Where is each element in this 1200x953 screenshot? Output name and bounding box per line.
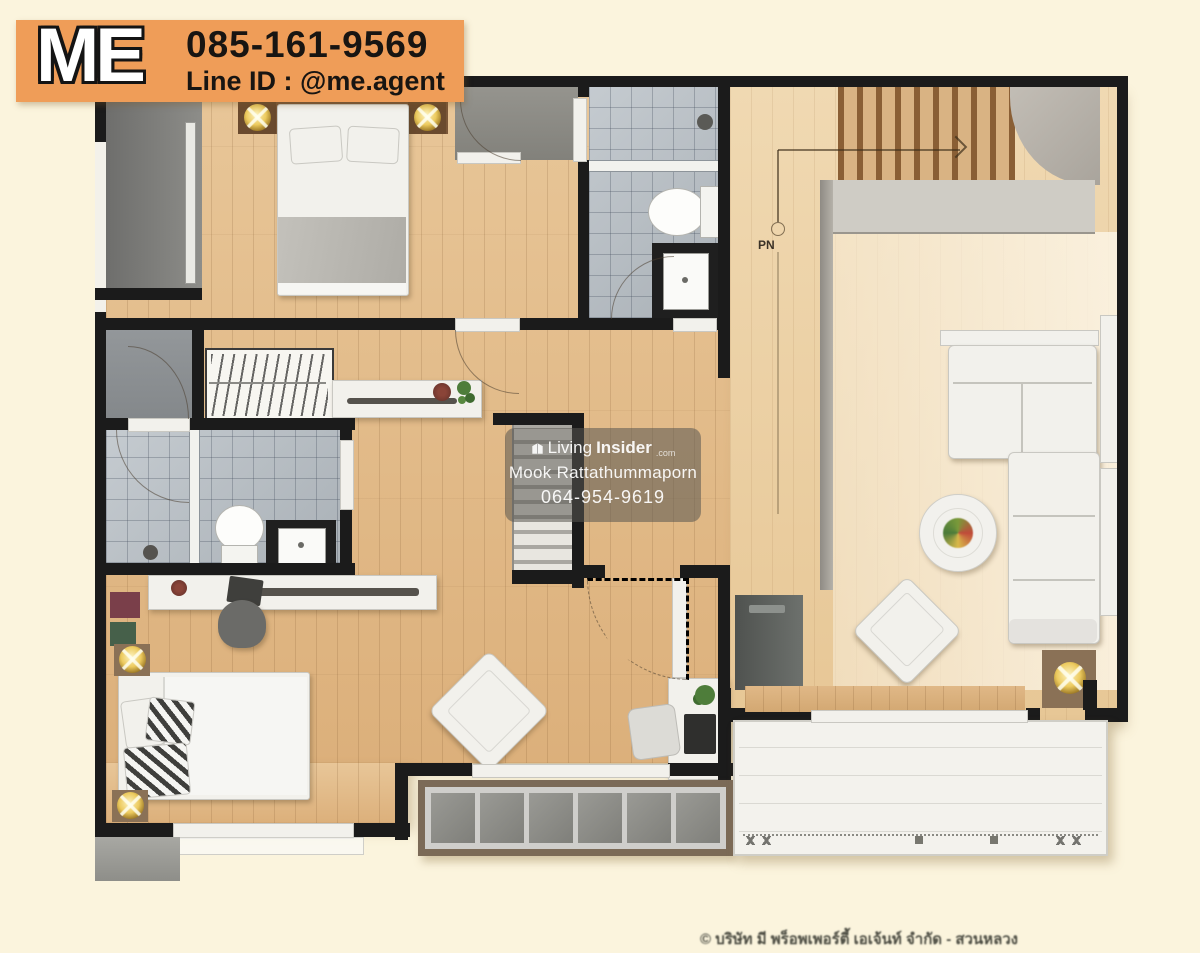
ac-ledge-left <box>95 837 180 881</box>
railing-x-mark <box>1069 836 1084 845</box>
wall-a-left <box>95 318 455 330</box>
staircase-upper <box>838 87 1015 180</box>
planter-segment <box>627 793 671 843</box>
planter-segment <box>676 793 720 843</box>
stairs-guide-line-faint <box>777 252 779 514</box>
railing-post <box>915 836 923 844</box>
railing-x-mark <box>1053 836 1068 845</box>
watermark-brand: LivingInsider.com <box>505 438 701 458</box>
wall-centerstairs-bottom <box>512 570 584 584</box>
cabinet-dark <box>735 595 803 690</box>
wall-bath2-right-upper <box>340 418 352 440</box>
bed1-blanket <box>278 217 406 283</box>
planter-segment <box>578 793 622 843</box>
ottoman-inner <box>869 591 945 667</box>
hall-console <box>332 380 482 418</box>
agent-logo: ME <box>36 12 142 99</box>
agent-phone: 085-161-9569 <box>186 24 428 66</box>
bed1 <box>277 104 409 296</box>
bed1-pillow-right <box>346 126 400 165</box>
wall-living-west-lower <box>718 572 730 692</box>
stairs-landing-strip <box>833 180 1095 234</box>
ottoman-inner <box>447 669 532 754</box>
wall-bed1-bath1-stub <box>578 87 589 97</box>
living-insider-logo-icon <box>531 442 544 455</box>
sofa-vertical <box>1008 452 1100 644</box>
wall-bedroom2-bottom-right <box>352 823 410 837</box>
console-tray <box>249 588 419 596</box>
closet-rail <box>209 382 326 384</box>
wardrobe-master <box>106 100 202 300</box>
coffee-table-decor <box>943 518 973 548</box>
wall-bath2-bottom <box>95 563 355 575</box>
living-window-sill-top <box>940 330 1099 346</box>
stairs-label-circle <box>771 222 785 236</box>
bed1-pillow-left <box>289 125 343 165</box>
watermark-agent-phone: 064-954-9619 <box>505 487 701 508</box>
watermark-brand-light: Living <box>548 438 592 458</box>
sink2-faucet <box>298 542 304 548</box>
closet-hangers <box>205 348 334 422</box>
agent-line-id: Line ID : @me.agent <box>186 66 445 97</box>
wall-decor-frame-2 <box>110 622 136 646</box>
wall-bath2-top-right <box>188 418 355 430</box>
wall-hall-south-left <box>575 565 605 578</box>
planter-segment <box>529 793 573 843</box>
toilet1-tank <box>700 186 719 238</box>
wardrobe-sliding-door <box>185 122 196 284</box>
planter-segment <box>480 793 524 843</box>
watermark-brand-tld: .com <box>656 448 676 458</box>
bath2-partition <box>189 430 200 563</box>
bed2 <box>118 672 310 800</box>
floor-lamp-living <box>1054 662 1086 694</box>
sofa-divider <box>1021 384 1023 454</box>
sofa-horizontal <box>948 345 1097 459</box>
wall-right <box>1117 76 1128 722</box>
agent-banner: ME 085-161-9569 Line ID : @me.agent <box>16 20 464 102</box>
bed1-sheet-fold <box>278 283 406 294</box>
wall-bed1-bath1 <box>578 160 589 330</box>
balcony-outline-bedroom2 <box>150 837 364 855</box>
console-plant-green <box>457 381 471 395</box>
shower2-head <box>143 545 158 560</box>
wall-vestibule-right <box>192 318 204 430</box>
shower1-head <box>697 114 713 130</box>
console-plant-red <box>433 383 451 401</box>
wall-terrace-west <box>718 688 731 788</box>
bed2-pillow-striped-1 <box>144 696 195 745</box>
planter-segment <box>431 793 475 843</box>
wall-a-right <box>589 318 673 330</box>
wall-centerstairs-top <box>493 413 584 425</box>
closet-hanger-pattern <box>211 354 328 416</box>
bed1-lamp-right <box>414 104 441 131</box>
toilet1-bowl <box>648 188 706 236</box>
lamp-bed2-top <box>119 646 146 673</box>
cabinet-items <box>749 605 785 613</box>
door-sill-bath1-south <box>673 318 717 332</box>
wall-middleroom-bottom-left <box>398 763 472 776</box>
stairs-guide-line-h <box>778 149 960 151</box>
stairs-guide-line-v <box>777 150 779 222</box>
console-plant <box>171 580 187 596</box>
wall-decor-frame-1 <box>110 592 140 618</box>
wall-wardrobe-divider <box>95 288 202 300</box>
coffee-table <box>919 494 997 572</box>
lamp-bed2-bottom <box>117 792 144 819</box>
railing-post <box>990 836 998 844</box>
sofa-divider <box>1013 515 1095 517</box>
wall-bedroom2-bottom-left <box>95 823 173 837</box>
wall-bath2-top-left <box>95 418 128 430</box>
terrace-wood-strip <box>745 686 1025 712</box>
desk-monitor <box>684 714 716 754</box>
watermark-agent-name: Mook Rattathummaporn <box>505 463 701 483</box>
stairs-void-rail <box>820 180 833 590</box>
railing-x-mark <box>759 836 774 845</box>
bedroom2-console <box>148 575 437 610</box>
bath1-partition <box>589 160 718 172</box>
office-chair <box>218 600 266 648</box>
terrace-sliding-door <box>811 710 1028 723</box>
sink1-faucet <box>682 277 688 283</box>
wall-living-west-upper <box>718 330 730 378</box>
wall-bath1-stairs <box>718 87 730 330</box>
floorplan-page: PN <box>0 0 1200 953</box>
terrace-deck <box>733 720 1108 856</box>
door-leaf-bath2-east <box>340 440 354 510</box>
wall-right-stub <box>1083 680 1097 710</box>
desk-plant <box>695 685 715 705</box>
terrace-deck-lines <box>739 726 1102 832</box>
sofa-armrest <box>1009 619 1097 643</box>
sofa-divider <box>1013 579 1095 581</box>
copyright-text: © บริษัท มี พร็อพเพอร์ตี้ เอเจ้นท์ จำกัด… <box>700 927 1130 951</box>
bed1-lamp-left <box>244 104 271 131</box>
window-sill-middleroom <box>472 764 670 778</box>
desk-chair <box>627 703 682 761</box>
watermark: LivingInsider.com Mook Rattathummaporn 0… <box>505 428 701 522</box>
railing-x-mark <box>743 836 758 845</box>
stairs-label: PN <box>758 238 775 252</box>
wall-hall-south-right <box>680 565 730 578</box>
planter-box <box>418 780 733 856</box>
watermark-brand-bold: Insider <box>596 438 652 458</box>
door-leaf-bath1-top <box>573 98 587 162</box>
